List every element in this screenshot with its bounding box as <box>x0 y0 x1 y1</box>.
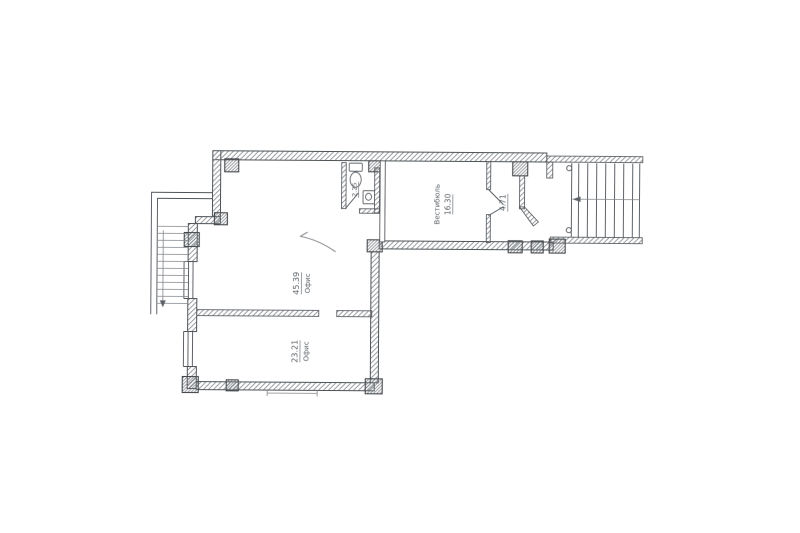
partition-segment <box>197 310 319 317</box>
wall-pier <box>188 299 197 332</box>
tambour-room: 4.71 <box>498 176 538 226</box>
office-partition <box>197 310 372 317</box>
wall-segment-wc-left <box>341 163 346 209</box>
wall-segment-stairwell-left-stub <box>547 162 553 178</box>
room-name-label: Офис <box>304 273 312 293</box>
window <box>184 261 193 298</box>
room-area-label: 2.25 <box>351 182 359 197</box>
stair-direction-arrow-icon <box>160 300 166 307</box>
column-pier <box>184 232 199 246</box>
wall-segment-upper-bottom <box>379 241 553 250</box>
partition-segment <box>337 311 372 317</box>
room-label-vestibule: Вестибюль 16.30 <box>433 184 453 225</box>
column-pier <box>513 162 528 176</box>
room-area-label: 16.30 <box>443 193 452 215</box>
wall-segment-right-lower <box>370 252 379 383</box>
floor-plan-canvas: 2.25 Вестибюль 16.30 4.71 <box>0 0 800 533</box>
floor-plan-drawing: 2.25 Вестибюль 16.30 4.71 <box>150 150 643 398</box>
column-pier <box>226 380 238 391</box>
exterior-stairs <box>151 192 213 314</box>
toilet-tank-icon <box>349 163 362 171</box>
column-pier <box>225 159 239 172</box>
room-label-wc: 2.25 <box>351 182 359 198</box>
room-area-label: 45.39 <box>292 272 301 295</box>
vestibule-room: Вестибюль 16.30 <box>380 161 504 243</box>
dimension-line <box>267 390 317 396</box>
room-name-label: Офис <box>302 341 310 361</box>
wall-segment-tambour-right <box>519 176 524 209</box>
exterior-walls <box>187 151 643 393</box>
wall-segment-angled <box>519 207 538 226</box>
wall-segment-stairwell-top <box>547 156 643 163</box>
wall-segment-wc-bottom <box>359 209 379 214</box>
stair-edge-line <box>639 164 640 238</box>
room-label-office-large: 45.39 Офис <box>292 272 312 295</box>
stair-railing-line <box>157 198 213 314</box>
wall-segment-left-stub <box>212 151 220 217</box>
wall-segment-vestibule-left <box>380 161 386 242</box>
stair-treads <box>578 163 633 237</box>
column-pier <box>508 241 522 253</box>
column-pier <box>182 376 198 392</box>
column-pier <box>549 239 565 253</box>
wall-segment-bottom <box>196 382 374 391</box>
wall-segment-wc-right <box>374 168 379 213</box>
pencil-checkmark <box>300 232 335 251</box>
column-pier <box>214 213 227 225</box>
room-area-label: 23.21 <box>290 340 299 363</box>
room-label-office-small: 23.21 Офис <box>290 340 310 363</box>
column-pier <box>531 241 543 253</box>
column-pier <box>365 379 382 394</box>
sink-basin-icon <box>366 193 372 200</box>
scanned-floor-plan-page: 2.25 Вестибюль 16.30 4.71 <box>0 0 800 533</box>
railing-post-icon <box>567 166 572 171</box>
partition-segment-vestibule <box>487 162 491 190</box>
window <box>183 331 192 366</box>
room-label-tambour: 4.71 <box>498 194 507 212</box>
room-area-label: 4.71 <box>498 194 507 211</box>
stair-direction-arrow-icon <box>573 196 581 202</box>
stair-edge-line <box>571 163 572 237</box>
partition-segment-vestibule <box>486 215 490 243</box>
room-name-label: Вестибюль <box>433 184 441 224</box>
stair-direction-line <box>163 230 164 303</box>
stairwell <box>566 163 640 238</box>
railing-post-icon <box>566 228 571 233</box>
